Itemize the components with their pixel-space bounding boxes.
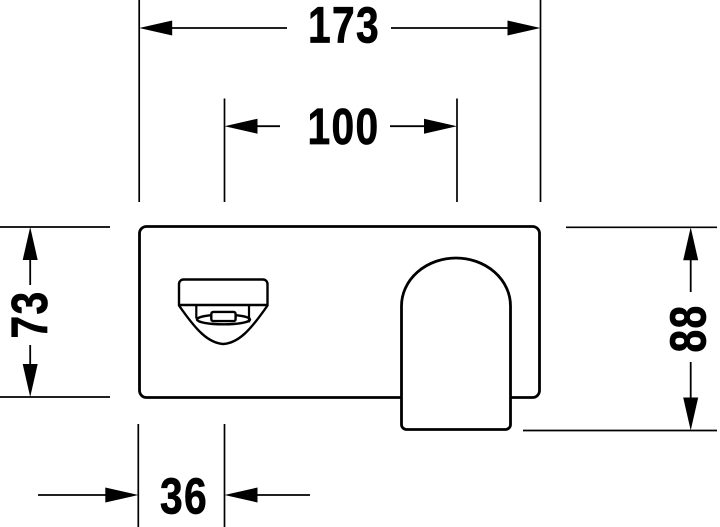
svg-text:173: 173	[308, 0, 380, 54]
svg-text:88: 88	[659, 305, 716, 353]
svg-text:100: 100	[308, 97, 380, 154]
svg-text:73: 73	[1, 291, 58, 339]
svg-text:36: 36	[160, 467, 208, 524]
